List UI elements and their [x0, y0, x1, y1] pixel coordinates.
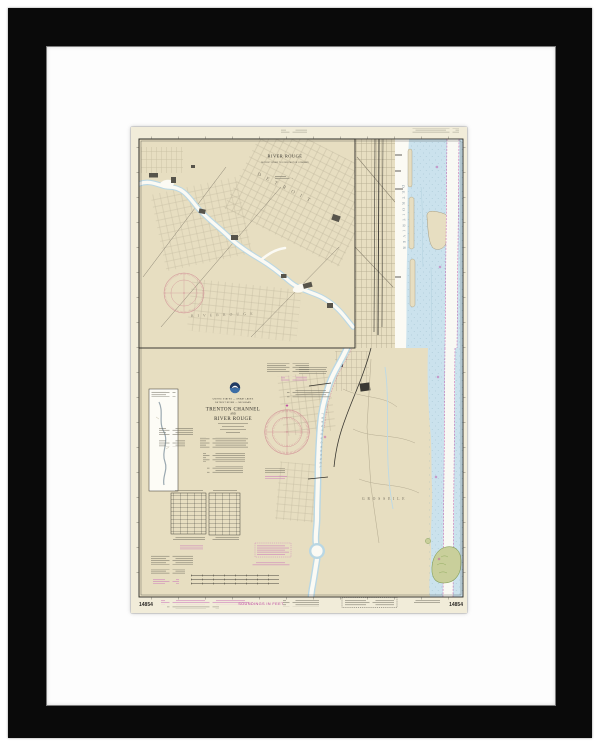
- top-center-note: [281, 129, 307, 133]
- inset-title: RIVER ROUGE: [268, 154, 303, 159]
- soundings-note: SOUNDINGS IN FEET: [238, 601, 284, 606]
- noaa-logo: [230, 382, 240, 393]
- chart-number-left: 14854: [139, 602, 153, 608]
- detroit-river-upper: D E T R O I T R I V E R: [355, 139, 463, 348]
- nautical-chart: D E T R O I T R I V E R: [131, 127, 467, 613]
- top-right-note: [411, 128, 459, 133]
- compass-rose-inset: [164, 273, 204, 313]
- tide-tables: [171, 491, 240, 542]
- grosse-ile-label: G R O S S E I L E: [362, 497, 405, 501]
- framed-chart-photo: D E T R O I T R I V E R: [0, 0, 600, 746]
- chart-paper: D E T R O I T R I V E R: [131, 127, 467, 613]
- chart-number-right: 14854: [449, 602, 463, 608]
- inset-subtitle: DETROIT RIVER TO FORD MOTOR COMPANY: [261, 161, 310, 164]
- river-rouge-inset: RIVER ROUGE DETROIT RIVER TO FORD MOTOR …: [139, 127, 384, 348]
- magenta-note-box: [255, 543, 291, 557]
- chart-title-line2: RIVER ROUGE: [214, 417, 252, 422]
- nation-line: UNITED STATES — GREAT LAKES: [213, 398, 254, 401]
- chart-title-and: AND: [230, 413, 236, 416]
- bottom-margin: 14854 SOUNDINGS IN FEET 14854: [139, 598, 463, 609]
- picture-frame: D E T R O I T R I V E R: [8, 8, 592, 738]
- region-line: DETROIT RIVER — MICHIGAN: [215, 401, 251, 404]
